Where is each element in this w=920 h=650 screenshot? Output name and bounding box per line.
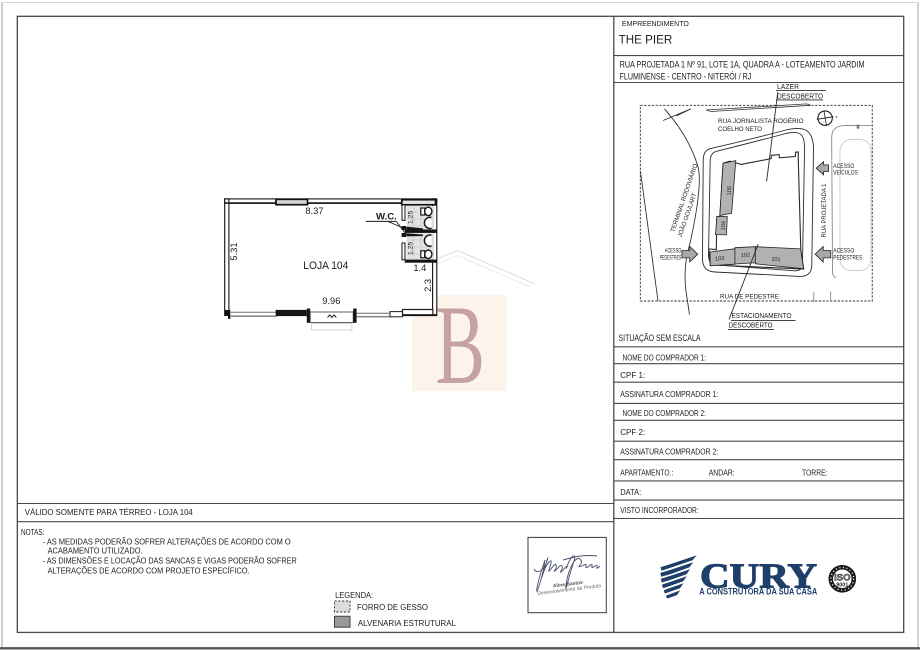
svg-text:PEDESTRES: PEDESTRES: [833, 256, 862, 262]
svg-text:103: 103: [715, 256, 725, 263]
svg-text:DESCOBERTO: DESCOBERTO: [777, 92, 823, 101]
svg-text:NOME DO COMPRADOR 1:: NOME DO COMPRADOR 1:: [623, 352, 707, 362]
svg-text:ALTERAÇÕES DE ACORDO COM PROJE: ALTERAÇÕES DE ACORDO COM PROJETO ESPECÍF…: [48, 565, 250, 575]
svg-text:B: B: [436, 283, 486, 408]
svg-text:ASSINATURA COMPRADOR 2:: ASSINATURA COMPRADOR 2:: [620, 446, 718, 456]
svg-text:PEDESTRES: PEDESTRES: [660, 256, 682, 262]
svg-text:101: 101: [771, 257, 781, 263]
svg-text:5.31: 5.31: [229, 242, 239, 260]
svg-text:SITUAÇÃO SEM ESCALA: SITUAÇÃO SEM ESCALA: [619, 333, 701, 343]
svg-text:104: 104: [721, 221, 728, 231]
svg-text:1.4: 1.4: [413, 263, 426, 273]
svg-text:102: 102: [741, 253, 751, 259]
svg-text:- AS DIMENSÕES E LOCAÇÃO DAS S: - AS DIMENSÕES E LOCAÇÃO DAS SANCAS E VI…: [43, 555, 297, 565]
svg-text:VÁLIDO SOMENTE PARA TÉRREO - L: VÁLIDO SOMENTE PARA TÉRREO - LOJA 104: [25, 507, 193, 517]
svg-text:ACESSO: ACESSO: [665, 249, 682, 255]
svg-text:RUA PROJETADA 1 Nº 91, LOTE 1A: RUA PROJETADA 1 Nº 91, LOTE 1A, QUADRA A…: [620, 59, 865, 69]
svg-text:FLUMINENSE - CENTRO - NITERÓI: FLUMINENSE - CENTRO - NITERÓI / RJ: [620, 71, 752, 81]
svg-text:CPF 2:: CPF 2:: [620, 427, 645, 437]
svg-text:RUA DE PEDESTRE: RUA DE PEDESTRE: [720, 294, 779, 301]
svg-text:FORRO DE GESSO: FORRO DE GESSO: [357, 602, 428, 612]
svg-text:ANDAR:: ANDAR:: [709, 468, 735, 478]
svg-text:DESCOBERTO: DESCOBERTO: [729, 321, 773, 330]
svg-text:EMPREENDIMENTO: EMPREENDIMENTO: [622, 21, 690, 28]
svg-text:ASSINATURA COMPRADOR 1:: ASSINATURA COMPRADOR 1:: [620, 389, 718, 399]
svg-text:VEÍCULOS: VEÍCULOS: [833, 170, 858, 177]
svg-text:8.37: 8.37: [305, 206, 323, 216]
svg-text:DATA:: DATA:: [620, 487, 641, 497]
svg-text:ACESSO: ACESSO: [833, 249, 854, 255]
svg-text:RUA PROJETADA 1: RUA PROJETADA 1: [821, 183, 828, 237]
svg-text:ALVENARIA ESTRUTURAL: ALVENARIA ESTRUTURAL: [358, 618, 456, 628]
svg-text:LOJA 104: LOJA 104: [303, 260, 348, 272]
svg-text:TORRE:: TORRE:: [802, 468, 828, 478]
svg-text:VISTO INCORPORADOR:: VISTO INCORPORADOR:: [620, 505, 699, 515]
svg-text:ACESSO: ACESSO: [833, 164, 854, 170]
svg-text:RUA JORNALISTA ROGÉRIO: RUA JORNALISTA ROGÉRIO: [718, 116, 804, 125]
svg-text:105: 105: [727, 186, 734, 196]
svg-text:LEGENDA:: LEGENDA:: [335, 590, 373, 600]
svg-text:THE PIER: THE PIER: [619, 35, 673, 47]
svg-text:ESTACIONAMENTO: ESTACIONAMENTO: [732, 311, 792, 320]
svg-text:COELHO NETO: COELHO NETO: [718, 126, 762, 133]
svg-text:1.25: 1.25: [408, 211, 415, 224]
svg-text:NOTAS:: NOTAS:: [21, 527, 45, 537]
svg-text:9.96: 9.96: [322, 296, 340, 306]
svg-text:9001: 9001: [836, 583, 848, 589]
svg-text:ACABAMENTO UTILIZADO.: ACABAMENTO UTILIZADO.: [48, 546, 143, 556]
svg-text:1.25: 1.25: [408, 242, 415, 255]
svg-text:A CONSTRUTORA DA SUA CASA: A CONSTRUTORA DA SUA CASA: [699, 586, 817, 596]
svg-text:APARTAMENTO.:: APARTAMENTO.:: [620, 468, 673, 478]
svg-text:LAZER: LAZER: [777, 82, 799, 91]
svg-text:NOME DO COMPRADOR 2:: NOME DO COMPRADOR 2:: [623, 408, 707, 418]
svg-text:2.3: 2.3: [423, 279, 433, 292]
svg-text:CPF 1:: CPF 1:: [620, 370, 645, 380]
